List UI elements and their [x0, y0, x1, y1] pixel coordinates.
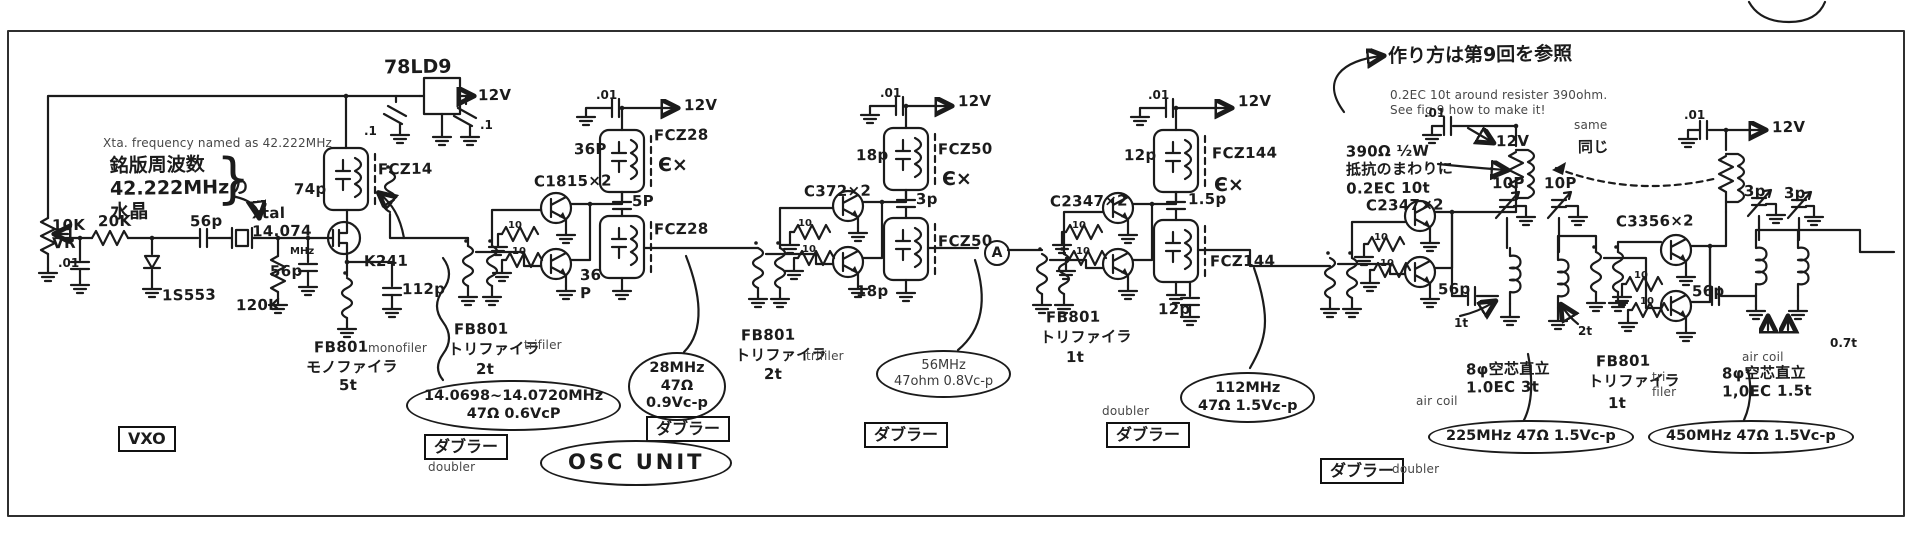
c18p-s3b-label: 18p: [856, 282, 889, 301]
doubler-box-2: ダブラー: [646, 416, 730, 442]
meas-450mhz-oval: 450MHz 47Ω 1.5Vc-p: [1648, 420, 1854, 454]
r10-s5b-label: 10: [1380, 258, 1394, 270]
r10-s2b-label: 10: [512, 246, 526, 258]
rail-12v-s3: 12V: [958, 92, 992, 111]
r10-s4a-label: 10: [1072, 220, 1086, 232]
tune-mark-2: Є×: [942, 168, 972, 192]
doubler-typed-2: doubler: [1102, 404, 1149, 419]
howto-note-en: 0.2EC 10t around resister 390ohm. See fi…: [1390, 88, 1607, 117]
nameplate-brace: }: [216, 152, 250, 206]
c3p-b-label: 3p: [1784, 184, 1806, 203]
r390-note: 390Ω ½W 抵抗のまわりに 0.2EC 10t: [1346, 141, 1454, 197]
c-p1-left-label: .1: [364, 124, 377, 139]
trifiler-typed-3: tri- filer: [1652, 370, 1676, 399]
q-c372-label: C372×2: [804, 182, 871, 201]
c01-s2-label: .01: [596, 88, 617, 103]
aircoil-typed-1: air coil: [1416, 394, 1458, 409]
c36p-s2a-label: 36P: [574, 140, 607, 159]
meas-56mhz-oval: 56MHz 47ohm 0.8Vc-p: [876, 350, 1011, 398]
c3p-s3-label: 3p: [916, 190, 938, 209]
aircoil-typed-2: air coil: [1742, 350, 1784, 365]
r10-s3b-label: 10: [802, 244, 816, 256]
aircoil-note-2: 8φ空芯直立 1,0EC 1.5t: [1722, 363, 1812, 401]
c01-s5-label: .01: [1424, 106, 1445, 121]
q-c2347a-label: C2347×2: [1050, 192, 1128, 211]
r10-s4b-label: 10: [1076, 246, 1090, 258]
xtal-mhz-label: MHz: [290, 246, 314, 258]
c56p-s6-label: 56p: [1692, 282, 1725, 301]
xtal-label: xtal 14.074: [252, 204, 312, 241]
c18p-s3a-label: 18p: [856, 146, 889, 165]
meas-28mhz-oval: 28MHz 47Ω 0.9Vc-p: [628, 352, 726, 421]
fcz144-a-label: FCZ144: [1212, 144, 1277, 163]
rail-12v-s4: 12V: [1238, 92, 1272, 111]
r-20k-label: 20K: [98, 212, 132, 231]
r10-s2a-label: 10: [508, 220, 522, 232]
fb801-6-label: FB801: [1596, 352, 1651, 371]
r-120k-label: 120K: [236, 296, 280, 315]
r10-s6a-label: 10: [1634, 270, 1648, 282]
meas-225mhz-oval: 225MHz 47Ω 1.5Vc-p: [1428, 420, 1634, 454]
tap-2t-s5-label: 2t: [1578, 324, 1592, 339]
point-a-circle: A: [984, 240, 1010, 266]
fcz28-b-label: FCZ28: [654, 220, 709, 239]
same-typed: same: [1574, 118, 1607, 133]
c-56p-input-label: 56p: [190, 212, 223, 231]
schematic-scan: Xta. frequency named as 42.222MHz銘版周波数 4…: [0, 0, 1920, 544]
c-p1-right-label: .1: [480, 118, 493, 133]
fb801-4-jp: トリファイラ: [1040, 327, 1132, 346]
r10-s5a-label: 10: [1374, 232, 1388, 244]
c12p-s4a-label: 12p: [1124, 146, 1157, 165]
tap-07t-s6-label: 0.7t: [1830, 336, 1857, 351]
q-c2347b-label: C2347×2: [1366, 196, 1444, 215]
c10p-b-label: 10P: [1544, 174, 1577, 193]
c01-s4-label: .01: [1148, 88, 1169, 103]
aircoil-note-1: 8φ空芯直立 1.0EC 3t: [1466, 359, 1550, 397]
fb801-1-jp: モノファイラ: [306, 357, 398, 376]
vxo-range-oval: 14.0698~14.0720MHz 47Ω 0.6VcP: [406, 380, 621, 431]
doubler-box-1: ダブラー: [424, 434, 508, 460]
r10-s3a-label: 10: [798, 218, 812, 230]
c15p-s4-label: 1.5p: [1188, 190, 1227, 209]
osc-unit-oval: OSC UNIT: [540, 440, 732, 486]
fb801-3-label: FB801: [741, 326, 796, 345]
trifiler-typed-2: trifiler: [806, 349, 844, 364]
howto-note-jp: 作り方は第9回を参照: [1388, 43, 1573, 69]
rail-12v-vxo: 12V: [478, 86, 512, 105]
c56p-s5-label: 56p: [1438, 280, 1471, 299]
c-74p-label: 74p: [294, 180, 327, 199]
c36p-s2b-label: 36 P: [580, 266, 602, 303]
trifiler-typed-1: trifiler: [524, 338, 562, 353]
r10-s6b-label: 10: [1640, 296, 1654, 308]
doubler-typed-3: doubler: [1392, 462, 1439, 477]
tap-1t-s5-label: 1t: [1454, 316, 1468, 331]
d-1s553-label: 1S553: [162, 286, 216, 305]
same-jp: 同じ: [1578, 138, 1609, 157]
q-k241-label: K241: [364, 252, 408, 271]
annotations-layer: Xta. frequency named as 42.222MHz銘版周波数 4…: [0, 0, 1920, 544]
vr-10k-label: 10K VR: [52, 216, 86, 253]
fb801-4-label: FB801: [1046, 308, 1101, 327]
rail-12v-s6: 12V: [1772, 118, 1806, 137]
q-c3356-label: C3356×2: [1616, 212, 1694, 231]
fcz28-a-label: FCZ28: [654, 126, 709, 145]
fb801-1-label: FB801: [314, 338, 369, 357]
fcz14-label: FCZ14: [378, 160, 433, 179]
c10p-a-label: 10P: [1492, 174, 1525, 193]
doubler-box-3: ダブラー: [864, 422, 948, 448]
c-56p-fet-label: 56p: [270, 262, 303, 281]
vxo-box: VXO: [118, 426, 176, 452]
monofiler-typed: monofiler: [368, 341, 427, 356]
fb801-4-turns: 1t: [1066, 348, 1084, 367]
tune-mark-1: Є×: [658, 154, 688, 178]
meas-112mhz-oval: 112MHz 47Ω 1.5Vc-p: [1180, 372, 1315, 423]
c01-s6-label: .01: [1684, 108, 1705, 123]
c3p-a-label: 3p: [1744, 182, 1766, 201]
fcz144-b-label: FCZ144: [1210, 252, 1275, 271]
c01-s3-label: .01: [880, 86, 901, 101]
c5p-s2-label: 5P: [632, 192, 654, 211]
fb801-2-label: FB801: [454, 320, 509, 339]
c-01-input-label: .01: [58, 256, 79, 271]
rail-12v-s2: 12V: [684, 96, 718, 115]
fb801-3-turns: 2t: [764, 365, 782, 384]
fb801-2-turns: 2t: [476, 360, 494, 379]
c-112p-label: 112p: [402, 280, 445, 299]
fb801-6-turns: 1t: [1608, 394, 1626, 413]
doubler-typed-1: doubler: [428, 460, 475, 475]
fb801-1-turns: 5t: [339, 376, 357, 395]
reg-78ld9-label: 78LD9: [384, 56, 452, 80]
q-c1815-label: C1815×2: [534, 172, 612, 191]
doubler-box-4: ダブラー: [1106, 422, 1190, 448]
rail-12v-s5: 12V: [1496, 132, 1530, 151]
c12p-s4b-label: 12p: [1158, 300, 1191, 319]
fcz50-a-label: FCZ50: [938, 140, 993, 159]
